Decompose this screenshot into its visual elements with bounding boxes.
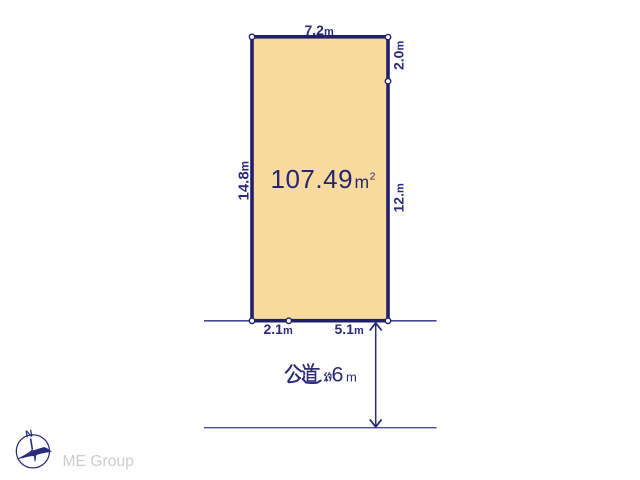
svg-text:ME Group: ME Group [63, 453, 134, 470]
